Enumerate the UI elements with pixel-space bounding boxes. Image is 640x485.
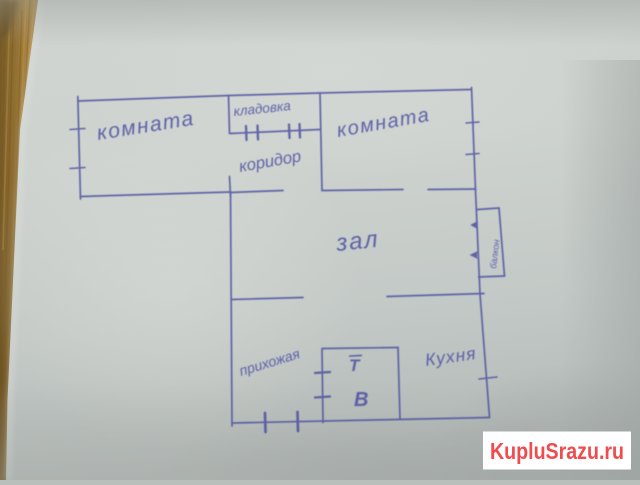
svg-text:Т: Т [349, 356, 361, 375]
svg-text:В: В [354, 389, 368, 411]
svg-text:зал: зал [334, 226, 381, 258]
svg-text:KupluSrazu.ru: KupluSrazu.ru [490, 438, 624, 464]
